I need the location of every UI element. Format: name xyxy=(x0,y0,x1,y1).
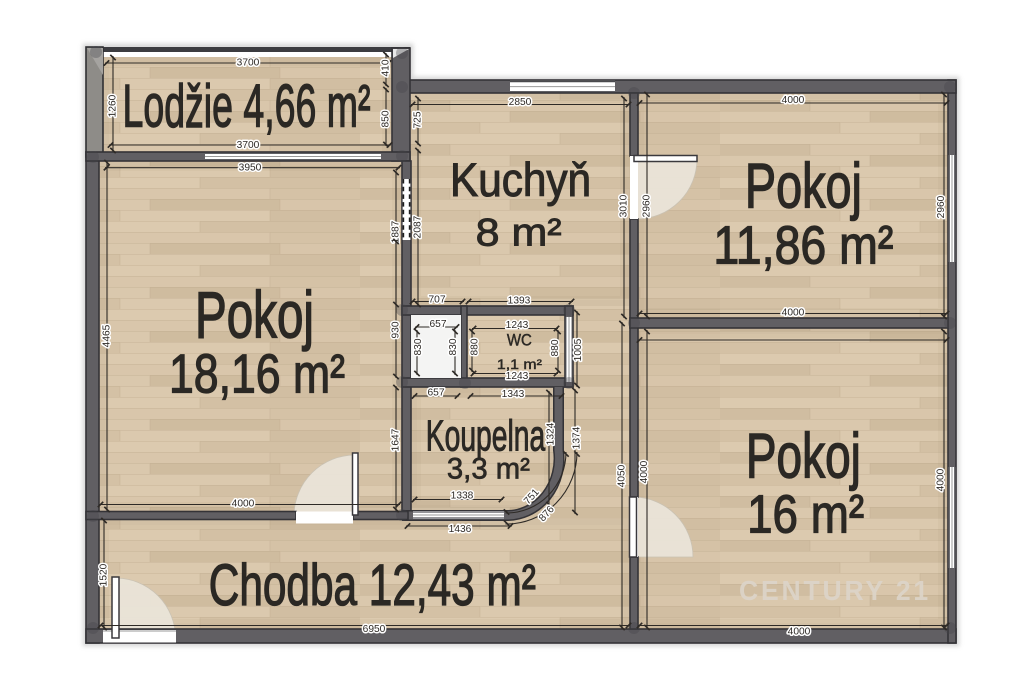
svg-text:1393: 1393 xyxy=(508,296,531,307)
svg-text:Lodžie 4,66 m²: Lodžie 4,66 m² xyxy=(123,73,371,140)
svg-text:830: 830 xyxy=(413,338,424,355)
svg-text:657: 657 xyxy=(430,319,447,330)
svg-text:6950: 6950 xyxy=(363,624,386,635)
svg-text:Chodba 12,43 m²: Chodba 12,43 m² xyxy=(209,553,536,618)
svg-text:1243: 1243 xyxy=(506,320,529,331)
svg-text:Pokoj: Pokoj xyxy=(745,151,862,221)
svg-text:CENTURY 21: CENTURY 21 xyxy=(739,575,931,606)
svg-text:1647: 1647 xyxy=(391,428,402,451)
svg-text:1343: 1343 xyxy=(502,389,525,400)
svg-text:880: 880 xyxy=(550,339,561,356)
svg-text:657: 657 xyxy=(428,388,445,399)
svg-text:4000: 4000 xyxy=(639,460,650,483)
svg-text:3,3 m²: 3,3 m² xyxy=(447,452,530,485)
svg-text:1,1 m²: 1,1 m² xyxy=(497,356,542,372)
svg-text:930: 930 xyxy=(391,321,402,338)
svg-text:1338: 1338 xyxy=(451,491,474,502)
svg-text:4050: 4050 xyxy=(617,464,628,487)
svg-text:2850: 2850 xyxy=(509,97,532,108)
svg-text:11,86 m²: 11,86 m² xyxy=(713,216,893,276)
svg-text:2087: 2087 xyxy=(413,215,424,238)
svg-text:410: 410 xyxy=(381,59,392,76)
svg-text:4000: 4000 xyxy=(788,627,811,638)
svg-text:Pokoj: Pokoj xyxy=(195,277,314,351)
svg-text:8 m²: 8 m² xyxy=(476,212,562,255)
svg-text:4465: 4465 xyxy=(102,324,113,347)
svg-text:850: 850 xyxy=(381,110,392,127)
svg-text:880: 880 xyxy=(470,338,481,355)
svg-text:4000: 4000 xyxy=(782,308,805,319)
svg-text:1887: 1887 xyxy=(391,220,402,243)
svg-text:725: 725 xyxy=(413,111,424,128)
svg-text:1243: 1243 xyxy=(506,371,529,382)
svg-text:4000: 4000 xyxy=(936,468,947,491)
svg-text:1260: 1260 xyxy=(108,94,119,117)
svg-text:3700: 3700 xyxy=(237,58,260,69)
svg-text:16 m²: 16 m² xyxy=(747,484,864,544)
svg-text:18,16 m²: 18,16 m² xyxy=(169,342,345,404)
svg-text:3950: 3950 xyxy=(239,163,262,174)
svg-text:3010: 3010 xyxy=(619,194,630,217)
svg-text:830: 830 xyxy=(448,338,459,355)
svg-text:2960: 2960 xyxy=(936,195,947,218)
svg-text:2960: 2960 xyxy=(642,194,653,217)
svg-text:Pokoj: Pokoj xyxy=(746,421,861,491)
svg-text:1324: 1324 xyxy=(546,422,557,445)
svg-text:1436: 1436 xyxy=(449,524,472,535)
svg-text:4000: 4000 xyxy=(782,95,805,106)
svg-text:1374: 1374 xyxy=(572,426,583,449)
svg-text:WC: WC xyxy=(507,330,532,349)
svg-text:1005: 1005 xyxy=(573,338,584,361)
svg-text:3700: 3700 xyxy=(237,140,260,151)
svg-text:707: 707 xyxy=(429,295,446,306)
svg-text:Kuchyň: Kuchyň xyxy=(450,153,591,206)
svg-text:4000: 4000 xyxy=(232,499,255,510)
svg-text:1520: 1520 xyxy=(99,563,110,586)
